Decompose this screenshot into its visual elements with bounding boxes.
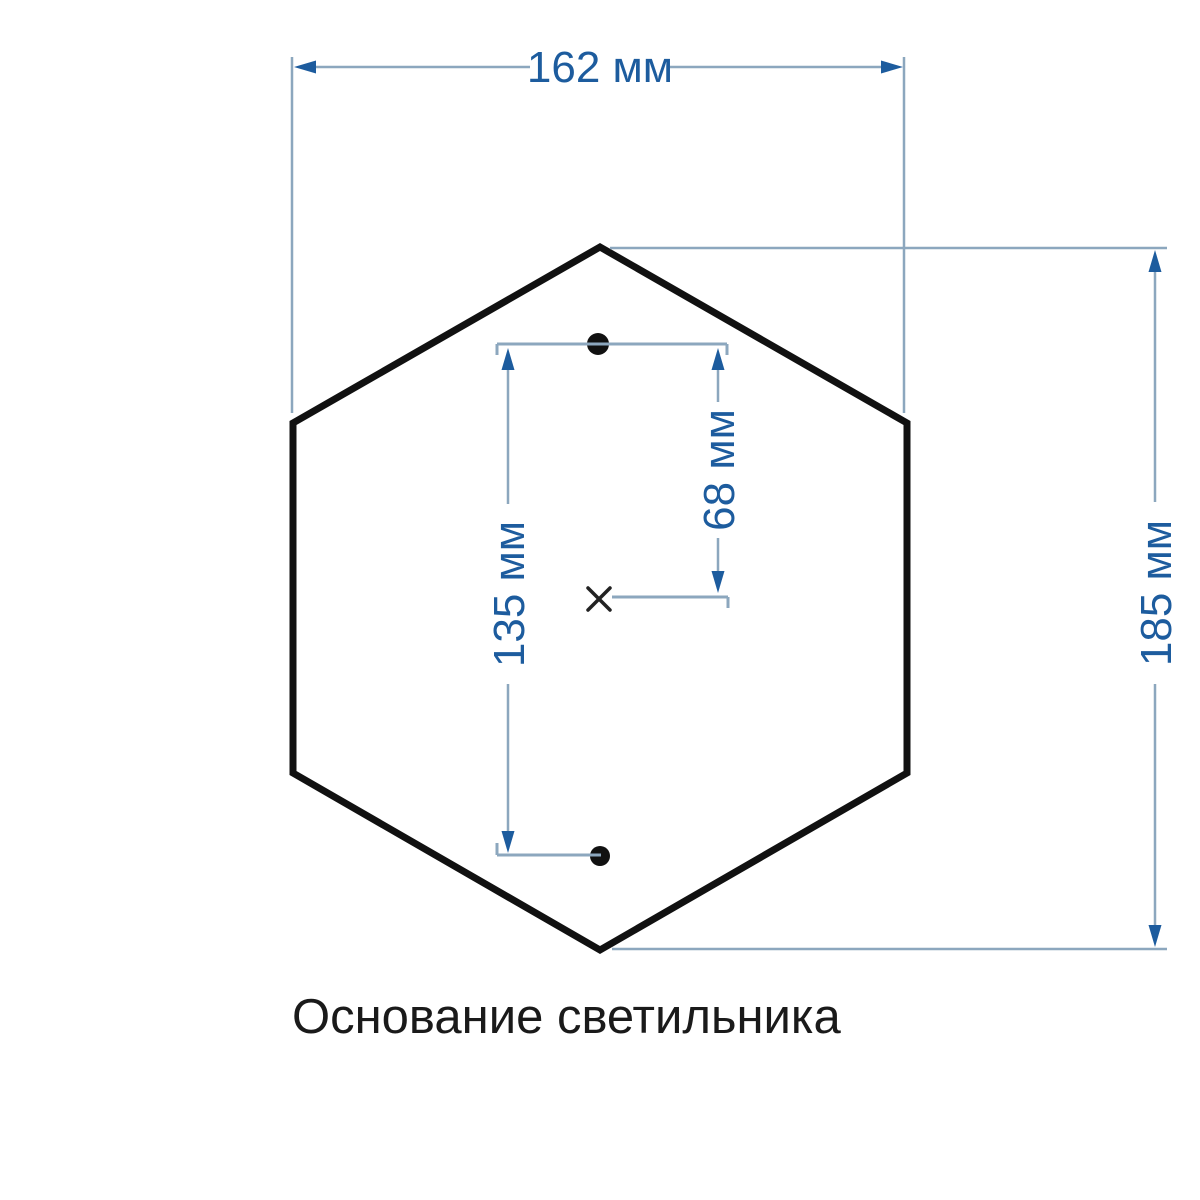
arrow-up-icon	[1149, 250, 1162, 272]
arrow-up-icon	[502, 348, 515, 370]
top-hole-group	[497, 333, 727, 355]
arrow-left-icon	[294, 61, 316, 74]
arrow-down-icon	[1149, 925, 1162, 947]
width-dimension-label: 162 мм	[527, 43, 673, 92]
hole-offset-dimension: 68 мм	[695, 348, 744, 593]
arrow-right-icon	[881, 61, 903, 74]
center-reference-group	[588, 588, 728, 610]
arrow-up-icon	[712, 348, 725, 370]
height-dimension-label: 185 мм	[1132, 520, 1181, 666]
diagram-canvas: 162 мм 185 мм 135 мм	[0, 0, 1200, 1200]
caption: Основание светильника	[292, 990, 841, 1044]
width-dimension: 162 мм	[292, 43, 904, 413]
center-mark-icon	[588, 588, 610, 610]
arrow-down-icon	[712, 571, 725, 593]
hole-spacing-dimension: 135 мм	[485, 348, 534, 853]
hole-offset-label: 68 мм	[695, 409, 744, 531]
arrow-down-icon	[502, 831, 515, 853]
hole-spacing-label: 135 мм	[485, 521, 534, 667]
lamp-base-diagram: 162 мм 185 мм 135 мм	[0, 0, 1200, 1200]
bottom-hole-group	[497, 843, 610, 866]
